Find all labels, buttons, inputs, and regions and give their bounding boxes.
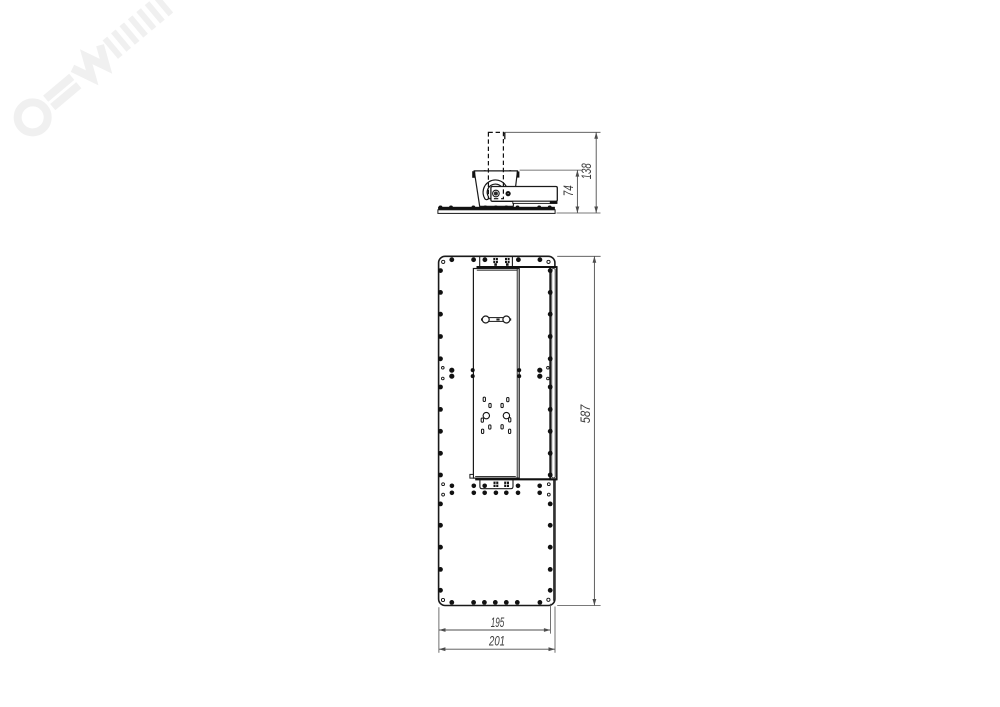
svg-text:201: 201 [488,633,505,649]
svg-text:138: 138 [578,163,594,179]
svg-text:74: 74 [560,185,576,196]
svg-text:587: 587 [577,404,593,423]
svg-text:195: 195 [491,614,505,630]
